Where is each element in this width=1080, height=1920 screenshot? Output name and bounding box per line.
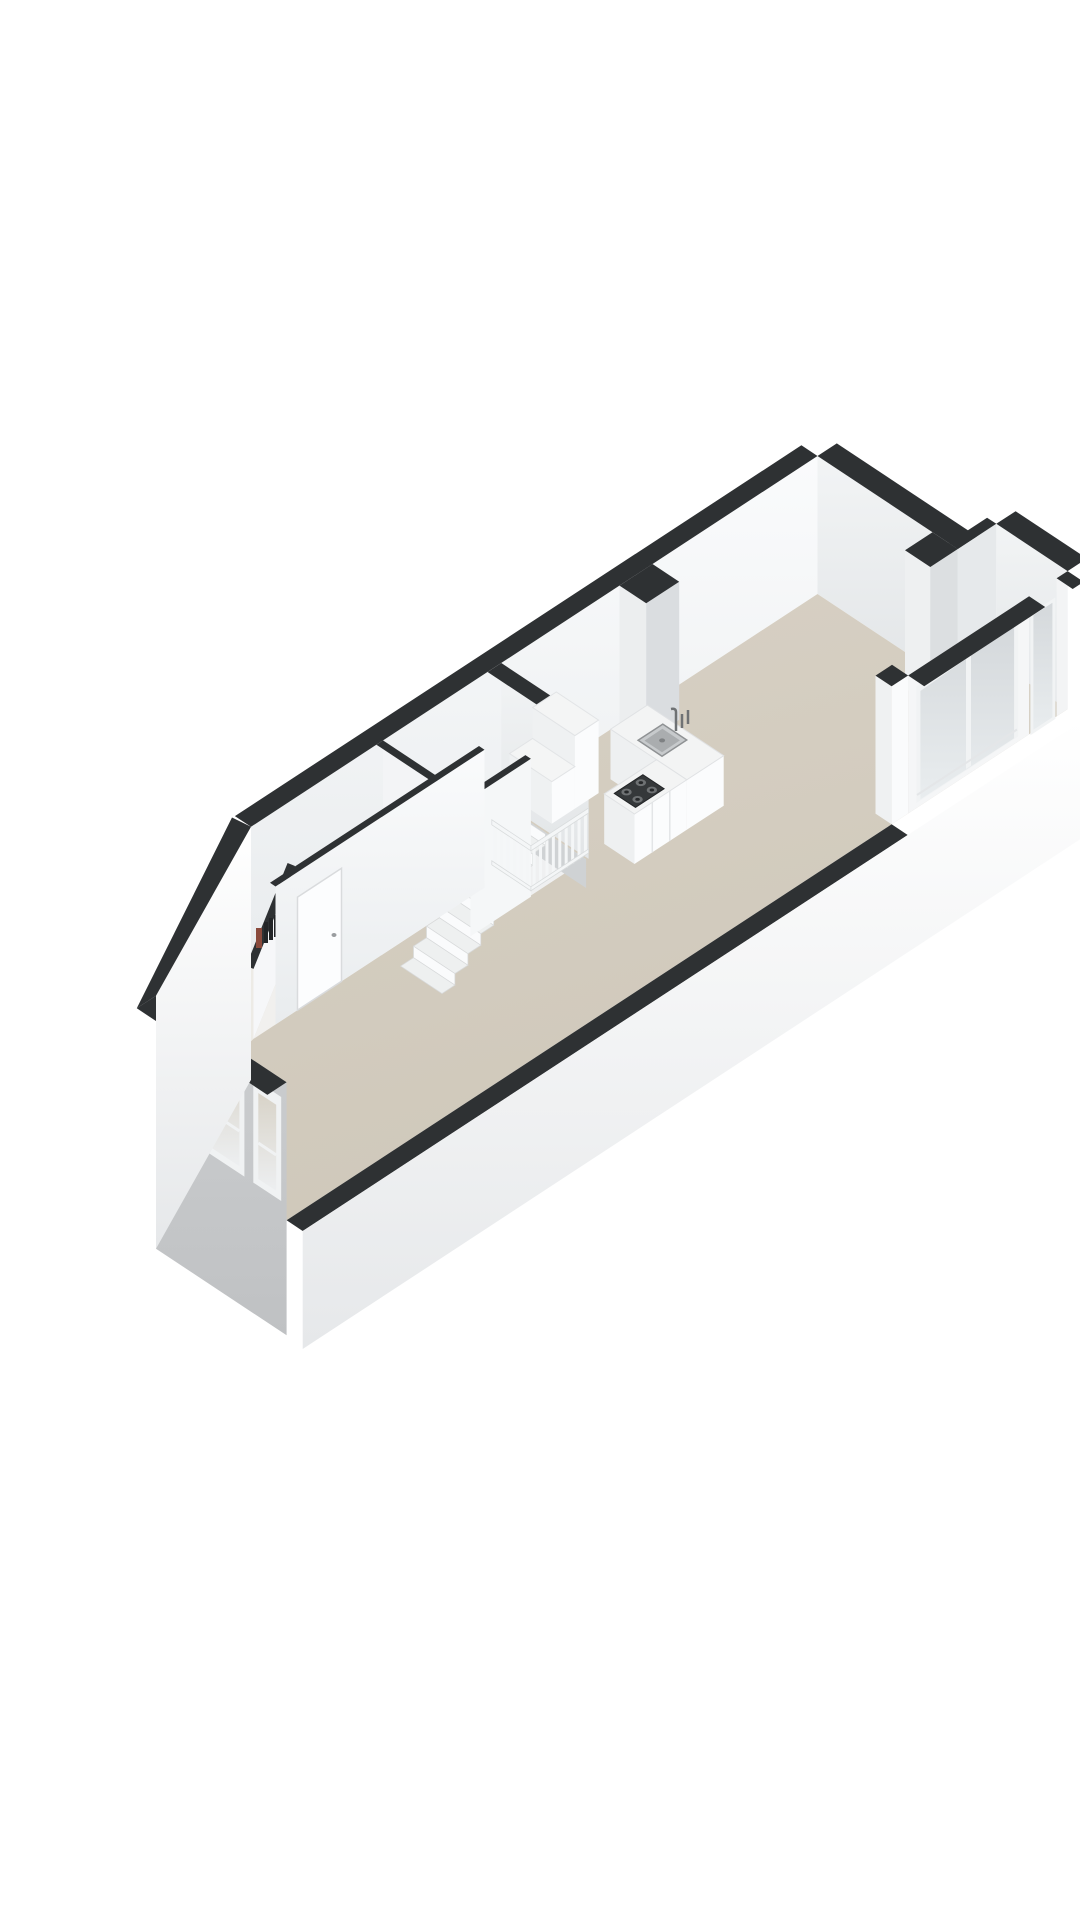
burner-center	[624, 791, 629, 794]
burner-center	[650, 788, 655, 791]
book	[269, 918, 273, 940]
facade-window-2-glass	[258, 1093, 276, 1191]
balcony-door-glass	[1032, 600, 1054, 733]
near-pier-end-face	[876, 676, 892, 825]
book-red	[256, 928, 262, 948]
burner-center	[635, 798, 640, 801]
near-pier-exterior-face	[892, 676, 909, 825]
floor-plan-3d	[0, 0, 1080, 1920]
sink-drain	[659, 738, 665, 742]
sliding-door-mullion	[966, 648, 971, 769]
book	[264, 922, 268, 943]
burner-center	[639, 781, 644, 784]
interior-door-handle	[332, 933, 337, 937]
niche-pier-face	[1057, 571, 1068, 716]
